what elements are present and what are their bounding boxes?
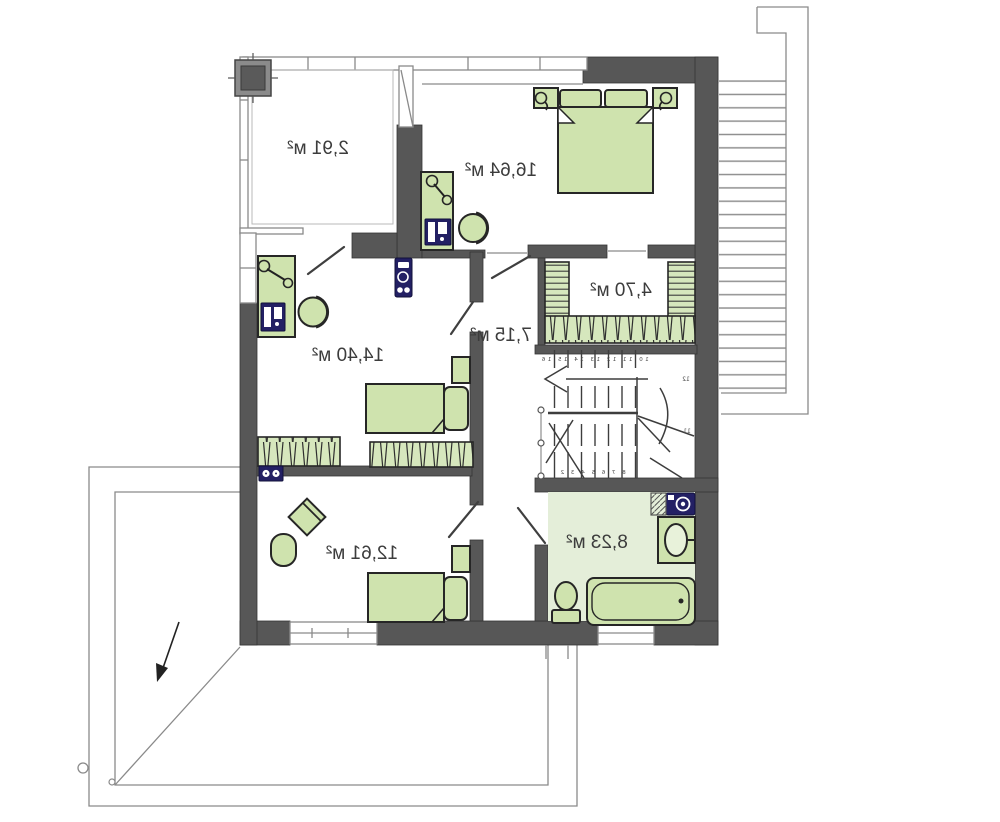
chimney-inner [241, 66, 265, 90]
roof-corner-circle [109, 779, 115, 785]
floor-plan-svg: 10 11 12 13 14 15 16 8 7 6 5 4 3 2 12 11 [0, 0, 1000, 822]
label-bathroom: 8,23 м² [566, 532, 628, 553]
socket-icon [259, 466, 283, 481]
bedside-cabinet-west [452, 357, 470, 383]
wall-west [240, 303, 257, 645]
door-balcony [308, 247, 344, 274]
wall-hall-closet [538, 258, 545, 347]
toilet-icon [552, 582, 580, 623]
stair-side-number-upper: 12 [682, 376, 690, 383]
label-balcony: 2,91 м² [287, 138, 349, 159]
stair-post-3 [538, 473, 544, 479]
armchair-icon [289, 499, 326, 536]
label-hall: 7,15 м² [470, 325, 532, 346]
label-bedroom-west: 14,40 м² [312, 345, 384, 366]
wall-stair-bath [535, 478, 718, 492]
roof-slope-arrow [156, 622, 179, 682]
monitor-main-icon [425, 219, 451, 245]
label-bedroom-main: 16,64 м² [465, 160, 537, 181]
chimney [228, 53, 278, 103]
window-north-band [243, 57, 587, 70]
floor-plan-page: 10 11 12 13 14 15 16 8 7 6 5 4 3 2 12 11 [0, 0, 1000, 822]
door-bedroom-main [492, 256, 530, 278]
label-bedroom-south: 12,61 м² [326, 543, 398, 564]
stair-winder-3 [650, 458, 682, 478]
bathtub-icon [587, 578, 695, 625]
stair-walk-line [659, 388, 668, 444]
lamp-right-icon [661, 93, 672, 104]
pillow-left [560, 90, 601, 107]
washbasin-icon [665, 524, 687, 556]
door-bathroom [518, 508, 545, 543]
wall-east [695, 57, 718, 645]
single-bed-west [366, 384, 444, 433]
wall-south-b [377, 621, 598, 645]
door-bedroom-west [451, 302, 473, 334]
wall-hall-west-2 [470, 332, 483, 505]
pillow-west [444, 387, 468, 430]
wall-balcony-divider [397, 125, 422, 258]
bedroom-main-furniture [421, 88, 677, 250]
stair-post-2 [538, 440, 544, 446]
wall-hall-west-1 [470, 252, 483, 302]
double-bed [558, 107, 653, 193]
wardrobe-shelving [545, 262, 695, 343]
wall-balcony-stub [352, 233, 397, 258]
door-bedroom-south [449, 502, 478, 537]
staircase: 10 11 12 13 14 15 16 8 7 6 5 4 3 2 12 11 [538, 350, 694, 479]
bedroom-west-furniture [258, 256, 473, 481]
wardrobe-hanger-rail [545, 316, 695, 343]
wall-bath-west [535, 545, 548, 621]
bedside-cabinet-south [452, 546, 470, 572]
wardrobe-strip-right [370, 442, 473, 467]
stair-winder-2 [638, 418, 670, 452]
lamp-left-icon [536, 93, 547, 104]
hall-electrical-panel [395, 258, 412, 297]
wall-hall-west-3 [470, 540, 483, 621]
roof-drain-circle [78, 763, 88, 773]
single-bed-south [368, 573, 444, 622]
side-table-icon [271, 534, 296, 566]
wall-bedroom-south-mid [528, 245, 607, 258]
pergola-outline [719, 7, 808, 414]
stair-upper-numbers: 10 11 12 13 14 15 16 [539, 357, 648, 363]
wall-closet-top [648, 245, 695, 258]
stair-lower-numbers: 8 7 6 5 4 3 2 [558, 470, 626, 476]
roof-hip-line [115, 647, 240, 785]
stair-side-number-lower: 11 [683, 428, 691, 435]
stair-post-1 [538, 407, 544, 413]
wardrobe-shelf-right [668, 262, 695, 318]
washing-machine-icon [666, 493, 695, 515]
label-wardrobe: 4,70 м² [590, 280, 652, 301]
wardrobe-strip-left [258, 437, 340, 466]
towel-rail-icon [651, 493, 666, 515]
monitor-west-icon [261, 303, 285, 331]
pillow-right [605, 90, 647, 107]
wardrobe-shelf-left [545, 262, 569, 318]
pillow-south [444, 577, 467, 620]
pergola-joists [719, 72, 786, 392]
